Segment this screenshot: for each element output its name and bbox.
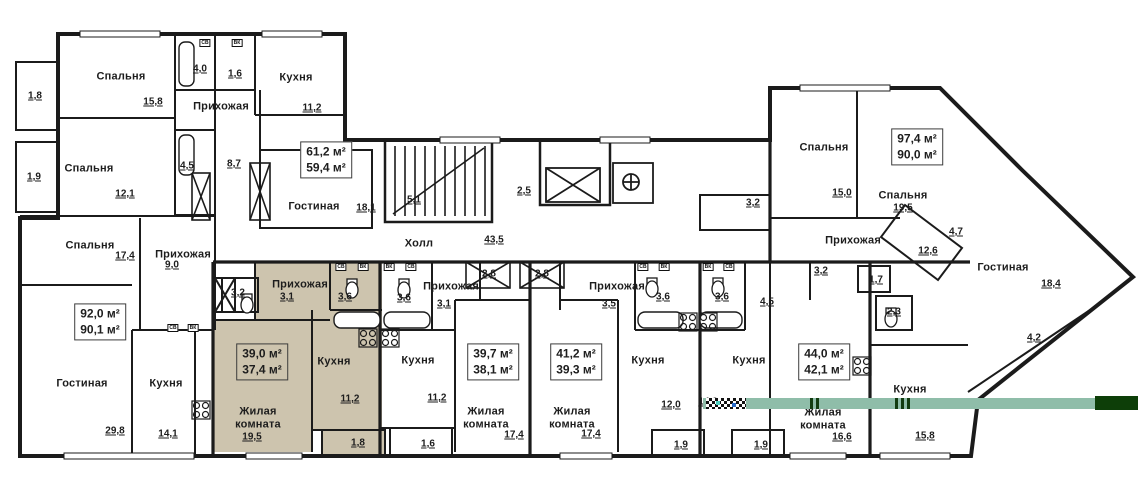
room-label: Спальня	[879, 190, 928, 203]
apartment-total-area: 41,2 м²	[556, 346, 596, 362]
fixture-tag: СВ	[167, 324, 178, 332]
area-value: 14,1	[158, 429, 177, 440]
area-value: 17,4	[504, 430, 523, 441]
area-value: 17,4	[581, 429, 600, 440]
area-value: 4,5	[760, 297, 774, 308]
area-value: 9,0	[165, 260, 179, 271]
area-value: 1,9	[754, 440, 768, 451]
room-label: Гостиная	[56, 378, 107, 391]
area-value: 11,2	[428, 393, 447, 404]
area-value: 2,3	[887, 307, 901, 318]
room-label: Прихожая	[193, 101, 249, 114]
area-value: 17,4	[115, 251, 134, 262]
area-value: 1,8	[28, 91, 42, 102]
apartment-area-box: 39,7 м²38,1 м²	[467, 343, 519, 380]
apartment-total-area: 39,7 м²	[473, 346, 513, 362]
area-value: 4,7	[949, 227, 963, 238]
bar-tick	[816, 398, 819, 409]
room-label: Кухня	[893, 384, 926, 397]
area-value: 43,5	[484, 235, 503, 246]
room-label: Спальня	[800, 142, 849, 155]
area-value: 19,5	[893, 203, 912, 214]
overlay-bar-artifact	[703, 398, 1097, 409]
apartment-total-area: 92,0 м²	[80, 306, 120, 322]
area-value: 2,5	[517, 186, 531, 197]
area-value: 1,9	[674, 440, 688, 451]
bar-tick	[810, 398, 813, 409]
fixture-tag: СВ	[637, 263, 648, 271]
labels-layer: СпальняКухняПрихожаяСпальняГостинаяСпаль…	[0, 0, 1138, 486]
selected-apartment-39[interactable]	[213, 262, 385, 458]
area-value: 3,5	[602, 299, 616, 310]
area-value: 15,0	[832, 188, 851, 199]
apartment-living-area: 38,1 м²	[473, 362, 513, 378]
area-value: 2,8	[535, 269, 549, 280]
fixture-tag: СВ	[199, 39, 210, 47]
area-value: 1,6	[228, 69, 242, 80]
area-value: 1,9	[27, 172, 41, 183]
area-value: 3,6	[656, 292, 670, 303]
noise-pixel	[716, 401, 720, 405]
area-value: 3,2	[814, 266, 828, 277]
area-value: 8,7	[227, 159, 241, 170]
fixture-tag: ВК	[659, 263, 670, 271]
bar-tick	[901, 398, 904, 409]
area-value: 12,1	[115, 189, 134, 200]
apartment-living-area: 39,3 м²	[556, 362, 596, 378]
area-value: 3,6	[397, 293, 411, 304]
area-value: 18,1	[356, 203, 375, 214]
room-label: Жилая комната	[791, 406, 855, 431]
area-value: 1,6	[421, 439, 435, 450]
room-label: Гостиная	[288, 201, 339, 214]
room-label: Гостиная	[977, 262, 1028, 275]
area-value: 4,5	[180, 161, 194, 172]
area-value: 18,4	[1041, 279, 1060, 290]
apartment-area-box: 44,0 м²42,1 м²	[798, 343, 850, 380]
fixture-tag: ВК	[188, 324, 199, 332]
room-label: Жилая комната	[540, 405, 604, 430]
room-label: Кухня	[631, 355, 664, 368]
fixture-tag: СВ	[723, 263, 734, 271]
area-value: 3,1	[437, 299, 451, 310]
area-value: 16,6	[832, 432, 851, 443]
apartment-living-area: 90,1 м²	[80, 322, 120, 338]
room-label: Кухня	[279, 72, 312, 85]
apartment-total-area: 44,0 м²	[804, 346, 844, 362]
area-value: 29,8	[105, 426, 124, 437]
apartment-area-box: 92,0 м²90,1 м²	[74, 303, 126, 340]
area-value: 3,6	[715, 292, 729, 303]
room-label: Кухня	[401, 355, 434, 368]
apartment-living-area: 59,4 м²	[306, 160, 346, 176]
apartment-total-area: 97,4 м²	[897, 131, 937, 147]
area-value: 2,8	[482, 269, 496, 280]
overlay-bar-dark-artifact	[1095, 396, 1138, 410]
area-value: 4,0	[193, 64, 207, 75]
bar-tick	[907, 398, 910, 409]
room-label: Прихожая	[423, 281, 479, 294]
floor-plan: СпальняКухняПрихожаяСпальняГостинаяСпаль…	[0, 0, 1138, 486]
area-value: 3,2	[746, 198, 760, 209]
apartment-living-area: 90,0 м²	[897, 147, 937, 163]
room-label: Кухня	[732, 355, 765, 368]
apartment-area-box: 97,4 м²90,0 м²	[891, 128, 943, 165]
bar-tick	[895, 398, 898, 409]
apartment-area-box: 41,2 м²39,3 м²	[550, 343, 602, 380]
room-label: Прихожая	[589, 281, 645, 294]
fixture-tag: ВК	[232, 39, 243, 47]
area-value: 5,1	[407, 195, 421, 206]
fixture-tag: ВК	[384, 263, 395, 271]
area-value: 11,2	[303, 103, 322, 114]
area-value: 4,2	[1027, 333, 1041, 344]
room-label: Холл	[405, 238, 433, 251]
apartment-total-area: 61,2 м²	[306, 144, 346, 160]
apartment-living-area: 42,1 м²	[804, 362, 844, 378]
area-value: 12,6	[918, 246, 937, 257]
fixture-tag: СВ	[405, 263, 416, 271]
area-value: 15,8	[915, 431, 934, 442]
area-value: 15,8	[143, 97, 162, 108]
apartment-area-box: 61,2 м²59,4 м²	[300, 141, 352, 178]
room-label: Прихожая	[825, 235, 881, 248]
fixture-tag: ВК	[703, 263, 714, 271]
noise-pixel	[732, 403, 736, 407]
room-label: Спальня	[97, 71, 146, 84]
area-value: 1,7	[869, 275, 883, 286]
room-label: Жилая комната	[454, 405, 518, 430]
room-label: Спальня	[66, 240, 115, 253]
checker-artifact	[706, 398, 746, 409]
room-label: Спальня	[65, 163, 114, 176]
area-value: 12,0	[661, 400, 680, 411]
room-label: Кухня	[149, 378, 182, 391]
room-label: Прихожая	[155, 249, 211, 262]
